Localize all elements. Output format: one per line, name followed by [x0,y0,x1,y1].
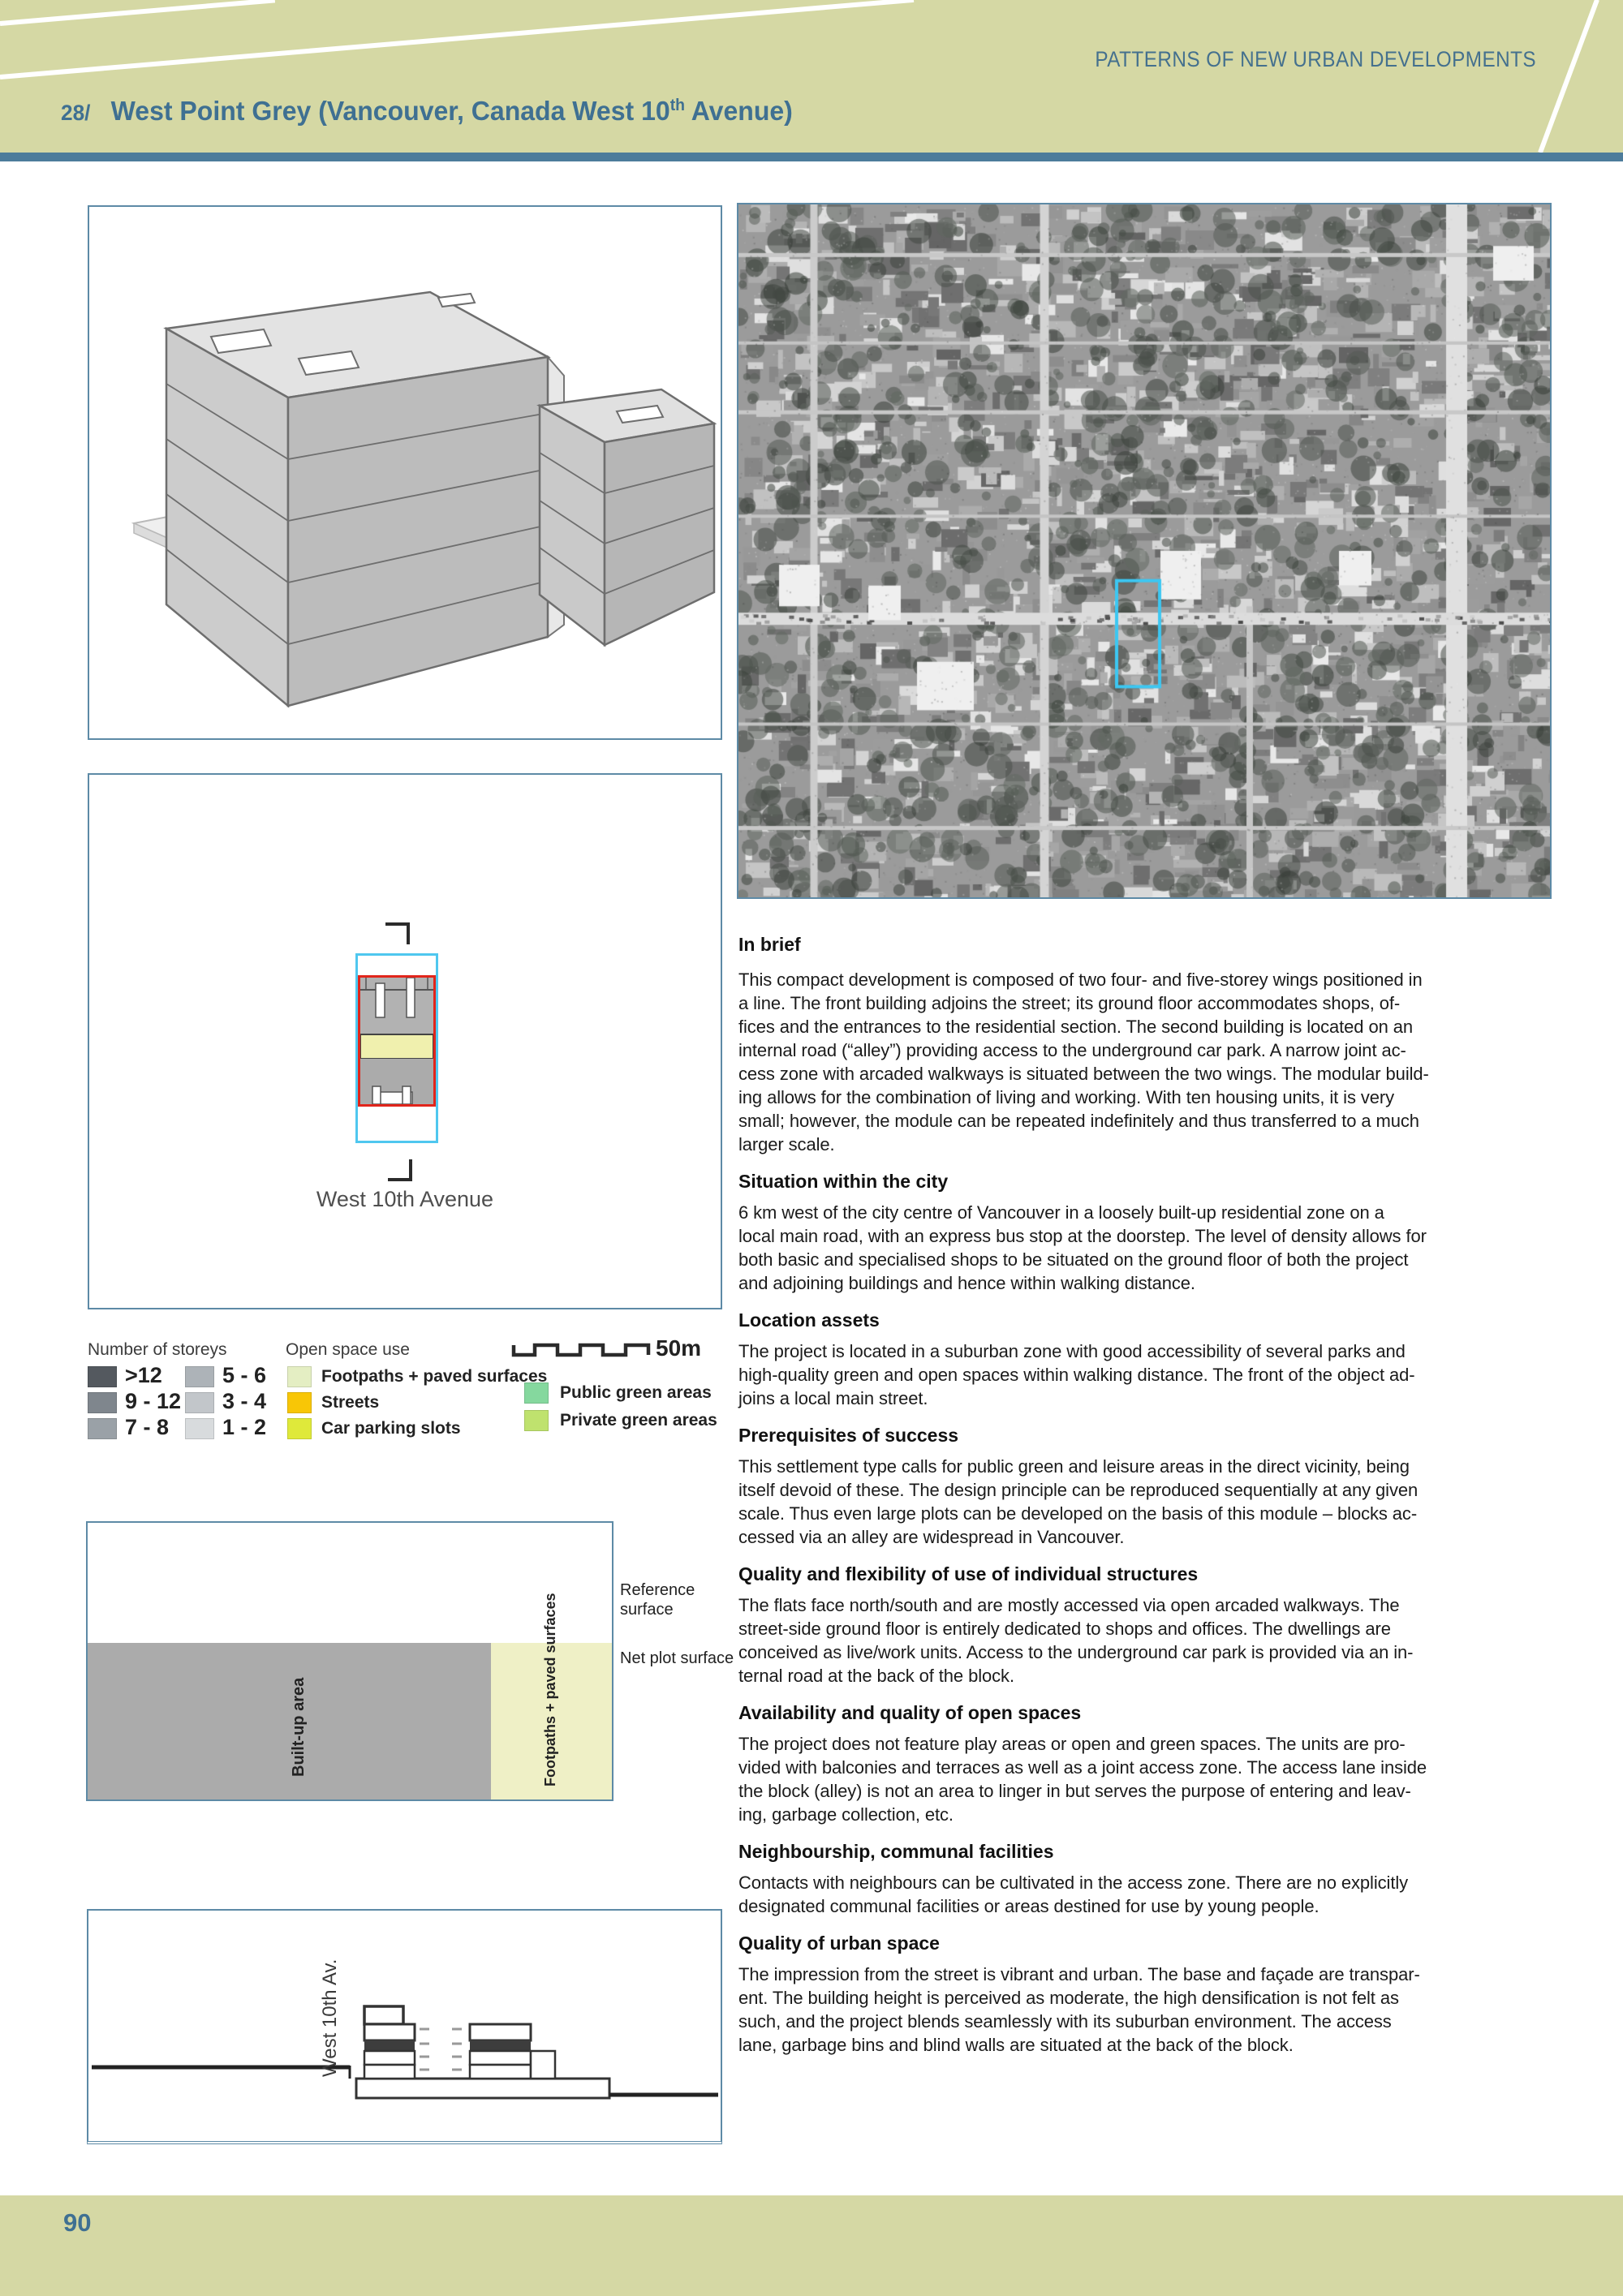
section-text-line: such, and the project blends seamlessly … [738,2010,1562,2033]
legend-item-label: Private green areas [560,1411,717,1430]
section-text-line: The project is located in a suburban zon… [738,1339,1562,1363]
section-text-line: ing allows for the combination of living… [738,1086,1562,1109]
legend-item-label: Public green areas [560,1383,712,1403]
body-text-column: In briefThis compact development is comp… [738,933,1562,2057]
legend-color-chip [88,1392,117,1413]
site-plan-buildings [360,978,433,1104]
legend-color-chip [88,1366,117,1387]
section-text-line: ent. The building height is perceived as… [738,1986,1562,2010]
section-text-line: 6 km west of the city centre of Vancouve… [738,1201,1562,1224]
legend-storeys-title: Number of storeys [88,1340,227,1360]
axonometric-drawing [89,207,721,738]
section-text-line: Contacts with neighbours can be cultivat… [738,1871,1562,1894]
section-heading: Neighbourship, communal facilities [738,1840,1562,1864]
header-rule [0,153,1623,161]
section-text-line: ternal road at the back of the block. [738,1664,1562,1688]
section-heading: Prerequisites of success [738,1424,1562,1447]
figure-land-use: Built-up area Footpaths + paved surfaces [86,1521,613,1801]
section-text-line: internal road (“alley”) providing access… [738,1038,1562,1062]
legend-open-space-title: Open space use [286,1340,410,1360]
scale-bar [511,1339,651,1361]
legend-item-label: 9 - 12 [125,1389,181,1414]
legend-item-label: 5 - 6 [222,1363,266,1388]
elevation-drawing: West 10th Av. [88,1911,721,2141]
legend-item-label: Footpaths + paved surfaces [321,1367,547,1387]
legend-color-chip [185,1418,214,1439]
title-text: West Point Grey (Vancouver, Canada West … [111,96,793,127]
section-text-line: high-quality green and open spaces withi… [738,1363,1562,1387]
built-up-area-label: Built-up area [290,1678,308,1777]
legend-color-chip [287,1418,312,1439]
section-text-line: vided with balconies and terraces as wel… [738,1756,1562,1779]
street-label: West 10th Avenue [89,1187,721,1212]
net-plot-surface-label: Net plot surface [620,1649,734,1668]
section-heading: Quality and flexibility of use of indivi… [738,1563,1562,1586]
section-text-line: cess zone with arcaded walkways is situa… [738,1062,1562,1086]
document-page: PATTERNS OF NEW URBAN DEVELOPMENTS 28/ W… [0,0,1623,2296]
elevation-street-label: West 10th Av. [319,1959,341,2077]
section-text-line: itself devoid of these. The design princ… [738,1478,1562,1502]
figure-axonometric [88,205,722,740]
section-text-line: lane, garbage bins and blind walls are s… [738,2033,1562,2057]
section-heading: Situation within the city [738,1170,1562,1193]
section-text-line: both basic and specialised shops to be s… [738,1248,1562,1271]
header-band: PATTERNS OF NEW URBAN DEVELOPMENTS 28/ W… [0,0,1623,153]
section-heading: Availability and quality of open spaces [738,1701,1562,1725]
legend-color-chip [185,1366,214,1387]
section-text-line: This settlement type calls for public gr… [738,1455,1562,1478]
footpaths-label: Footpaths + paved surfaces [542,1593,559,1786]
legend-color-chip [524,1410,549,1431]
section-text-line: and adjoining buildings and hence within… [738,1271,1562,1295]
section-heading: Location assets [738,1309,1562,1332]
header-diagonal-line [0,0,275,26]
section-text-line: The impression from the street is vibran… [738,1963,1562,1986]
legend-item-label: Streets [321,1393,379,1412]
legend-color-chip [185,1392,214,1413]
section-text-line: local main road, with an express bus sto… [738,1224,1562,1248]
legend-color-chip [88,1418,117,1439]
legend-color-chip [287,1392,312,1413]
page-title: 28/ West Point Grey (Vancouver, Canada W… [61,96,793,127]
section-text-line: larger scale. [738,1133,1562,1156]
section-text-line: street-side ground floor is entirely ded… [738,1617,1562,1640]
case-number: 28/ [61,101,90,126]
section-text-line: cessed via an alley are widespread in Va… [738,1525,1562,1549]
section-text-line: scale. Thus even large plots can be deve… [738,1502,1562,1525]
section-text-line: fices and the entrances to the residenti… [738,1015,1562,1038]
legend-color-chip [287,1366,312,1387]
legend-item-label: Car parking slots [321,1419,461,1438]
section-text-line: a line. The front building adjoins the s… [738,991,1562,1015]
section-text-line: ing, garbage collection, etc. [738,1803,1562,1826]
building-outline [358,975,436,1107]
section-text-line: conceived as live/work units. Access to … [738,1640,1562,1664]
section-text-line: the block (alley) is not an area to ling… [738,1779,1562,1803]
scale-label: 50m [656,1335,701,1361]
section-heading: In brief [738,933,1562,957]
section-heading: Quality of urban space [738,1932,1562,1955]
reference-surface-label: Reference surface [620,1580,695,1619]
section-text-line: joins a local main street. [738,1387,1562,1410]
figure-elevation: West 10th Av. [87,1909,722,2144]
aerial-photo-canvas [738,204,1550,897]
legend-item-label: 3 - 4 [222,1389,266,1414]
section-text-line: This compact development is composed of … [738,968,1562,991]
section-cut-mark [385,922,410,944]
section-text-line: The flats face north/south and are mostl… [738,1593,1562,1617]
legend-item-label: 7 - 8 [125,1415,169,1440]
figure-site-plan: West 10th Avenue [88,773,722,1309]
header-diagonal-line [1538,0,1599,153]
section-text-line: designated communal facilities or areas … [738,1894,1562,1918]
legend-color-chip [524,1382,549,1404]
legend-item-label: >12 [125,1363,162,1388]
figure-aerial-photo [737,203,1552,899]
legend-item-label: 1 - 2 [222,1415,266,1440]
footer-band: 90 [0,2195,1623,2296]
section-text-line: small; however, the module can be repeat… [738,1109,1562,1133]
page-number: 90 [63,2208,91,2238]
section-text-line: The project does not feature play areas … [738,1732,1562,1756]
running-title: PATTERNS OF NEW URBAN DEVELOPMENTS [1095,47,1536,72]
section-cut-mark [388,1159,412,1181]
